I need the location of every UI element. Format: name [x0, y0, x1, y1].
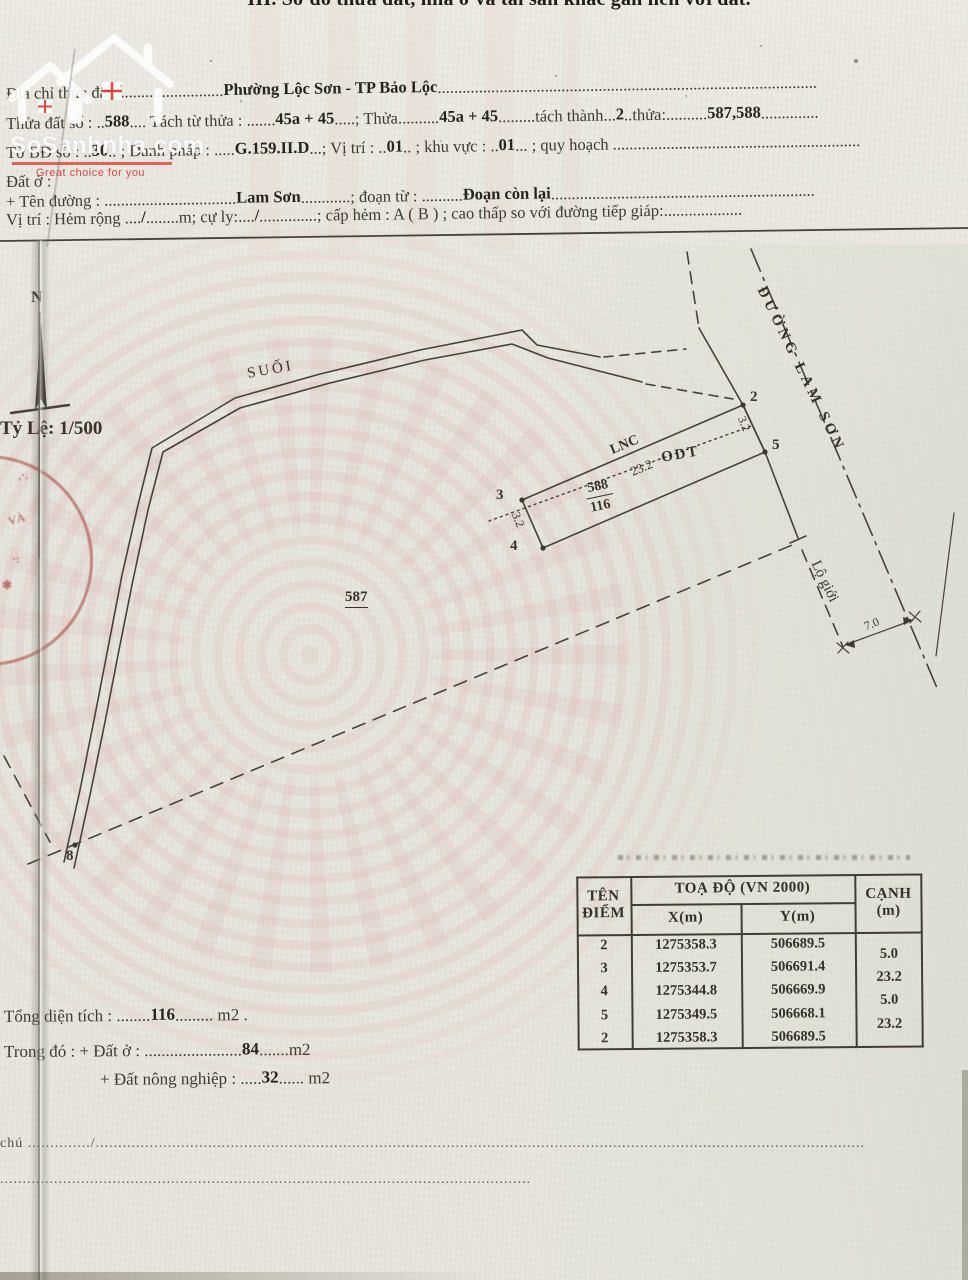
stamp-text-fragment: ,·.: [18, 468, 28, 483]
stamp-text-fragment: ✱: [2, 578, 12, 593]
point-name: 3: [577, 960, 631, 977]
table-edge-column: 5.023.25.023.2: [855, 931, 924, 1048]
field-label: ... ; quy hoạch ........................…: [515, 131, 860, 155]
road-width-label: 7.0: [862, 614, 882, 634]
coord-y: 506691.4: [741, 958, 855, 976]
field-label: Vị trí : Hẻm rộng ....: [6, 208, 141, 229]
point-name: 2: [578, 1030, 632, 1047]
field-label: .. ; khu vực : ..: [403, 136, 499, 156]
edge-length: 5.0: [855, 992, 923, 1010]
edge-length: 23.2: [855, 969, 923, 987]
table-header-x: X(m): [630, 903, 740, 934]
field-label: Tổng diện tích : ........: [4, 1006, 151, 1026]
field-label: + Đất nông nghiệp : .....: [100, 1069, 262, 1089]
stamp-text-fragment: ·:: [12, 552, 20, 567]
right-edge-shadow: [962, 1070, 968, 1280]
vertex-8-label: 8: [66, 848, 74, 865]
coord-y: 506669.9: [741, 982, 855, 1000]
field-value: Phường Lộc Sơn - TP Bảo Lộc: [223, 77, 437, 100]
agricultural-area-line: + Đất nông nghiệp : .....32...... m2: [100, 1068, 330, 1090]
field-value: 01: [498, 135, 515, 155]
vertex-4-label: 4: [510, 538, 518, 555]
vertex-5-label: 5: [772, 437, 780, 454]
coord-y: 506668.1: [741, 1005, 855, 1023]
coordinate-table: TÊN ĐIỂM TOẠ ĐỘ (VN 2000) X(m) Y(m) CẠNH…: [576, 873, 924, 1050]
road-name-label: ĐƯỜNG LAM SƠN: [753, 284, 848, 455]
bottom-edge-shadow: [0, 1272, 500, 1280]
field-value: 32: [262, 1068, 279, 1088]
division-length: 23.2: [628, 456, 655, 480]
field-label: ...; Vị trí : ..: [309, 138, 386, 158]
field-value: 2: [616, 104, 625, 124]
defaced-text: [618, 855, 910, 860]
coord-x: 1275349.5: [631, 1006, 741, 1024]
coord-x: 1275358.3: [631, 936, 741, 954]
field-value: 587,588: [707, 102, 761, 123]
scale-label: Tỷ Lệ: 1/500: [0, 418, 102, 440]
point-name: 2: [577, 937, 631, 954]
edge-length: 23.2: [855, 1015, 923, 1033]
watermark-rule: [12, 162, 172, 165]
field-label: .........tách thành...: [498, 105, 616, 126]
field-value: G.159.II.D: [235, 138, 310, 159]
field-label: .......m2: [259, 1040, 311, 1059]
section-title: III. Sơ đồ thửa đất, nhà ở và tài sản kh…: [247, 0, 750, 11]
field-label: ........m; cự ly:....: [146, 207, 255, 228]
field-label: ........................................…: [437, 73, 817, 97]
table-header-coords: TOẠ ĐỘ (VN 2000): [630, 874, 854, 904]
watermark-tagline: Great choice for you: [36, 167, 232, 179]
vertex-3-label: 3: [496, 487, 504, 504]
table-row: 31275353.7506691.4: [577, 955, 855, 981]
paper-fold: [30, 240, 50, 1280]
field-value: 84: [242, 1039, 259, 1059]
ink-specks: [210, 60, 212, 62]
landuse-odt-label: ODT: [660, 443, 701, 466]
field-label: ..............: [761, 103, 819, 123]
note-line-1: chú ............../.....................…: [0, 1136, 962, 1152]
sosanhnha-watermark: SoSanhnha.com Great choice for you: [2, 20, 232, 179]
table-header-y: Y(m): [740, 902, 854, 933]
parcel-area: 116: [589, 497, 612, 517]
field-value: 01: [386, 136, 403, 156]
edge-3-4-length: 3.2: [508, 510, 528, 530]
table-row: 21275358.3506689.5: [578, 1025, 856, 1051]
field-value: 45a + 45: [275, 108, 334, 129]
field-value: /: [141, 207, 146, 227]
edge-length: 5.0: [855, 945, 923, 963]
field-value: Lam Sơn: [236, 187, 301, 208]
coord-x: 1275344.8: [631, 983, 741, 1001]
field-value: 116: [150, 1005, 175, 1025]
field-value: Đoạn còn lại: [463, 183, 551, 204]
field-value: /: [254, 205, 259, 225]
point-name: 4: [577, 984, 631, 1001]
big-house-roof-icon: [60, 38, 170, 84]
watermark-brand: SoSanhnha.com: [10, 132, 232, 160]
stream-label: SUỐI: [246, 358, 295, 383]
table-body: 21275358.3506689.531275353.7506691.44127…: [577, 932, 856, 1050]
table-row: 41275344.8506669.9: [577, 978, 855, 1004]
field-label: ......... m2 .: [175, 1005, 248, 1025]
note-line-2: ........................................…: [0, 1172, 706, 1188]
vertex-2-label: 2: [750, 389, 758, 406]
landuse-lnc-label: LNC: [608, 432, 641, 458]
coord-x: 1275358.3: [632, 1029, 742, 1047]
paper-fold-line: [38, 240, 40, 1280]
field-label: ..thửa:..........: [624, 104, 707, 124]
table-header-point: TÊN ĐIỂM: [576, 876, 631, 934]
field-label: ...... m2: [279, 1068, 331, 1087]
houses-icon: [2, 20, 232, 125]
parcel-587-label: 587: [345, 589, 368, 608]
point-name: 5: [577, 1007, 631, 1024]
field-value: 45a + 45: [439, 106, 498, 127]
table-row: 51275349.5506668.1: [577, 1002, 855, 1028]
table-row: 21275358.3506689.5: [577, 932, 855, 958]
road-boundary-label: Lộ giới: [807, 558, 842, 605]
table-header-edge: CẠNH (m): [854, 873, 923, 932]
coord-y: 506689.5: [741, 935, 855, 953]
coord-x: 1275353.7: [631, 959, 741, 977]
field-label: .....; Thửa..........: [334, 108, 439, 128]
coord-y: 506689.5: [742, 1028, 856, 1046]
edge-2-5-length: 3.2: [734, 414, 754, 434]
